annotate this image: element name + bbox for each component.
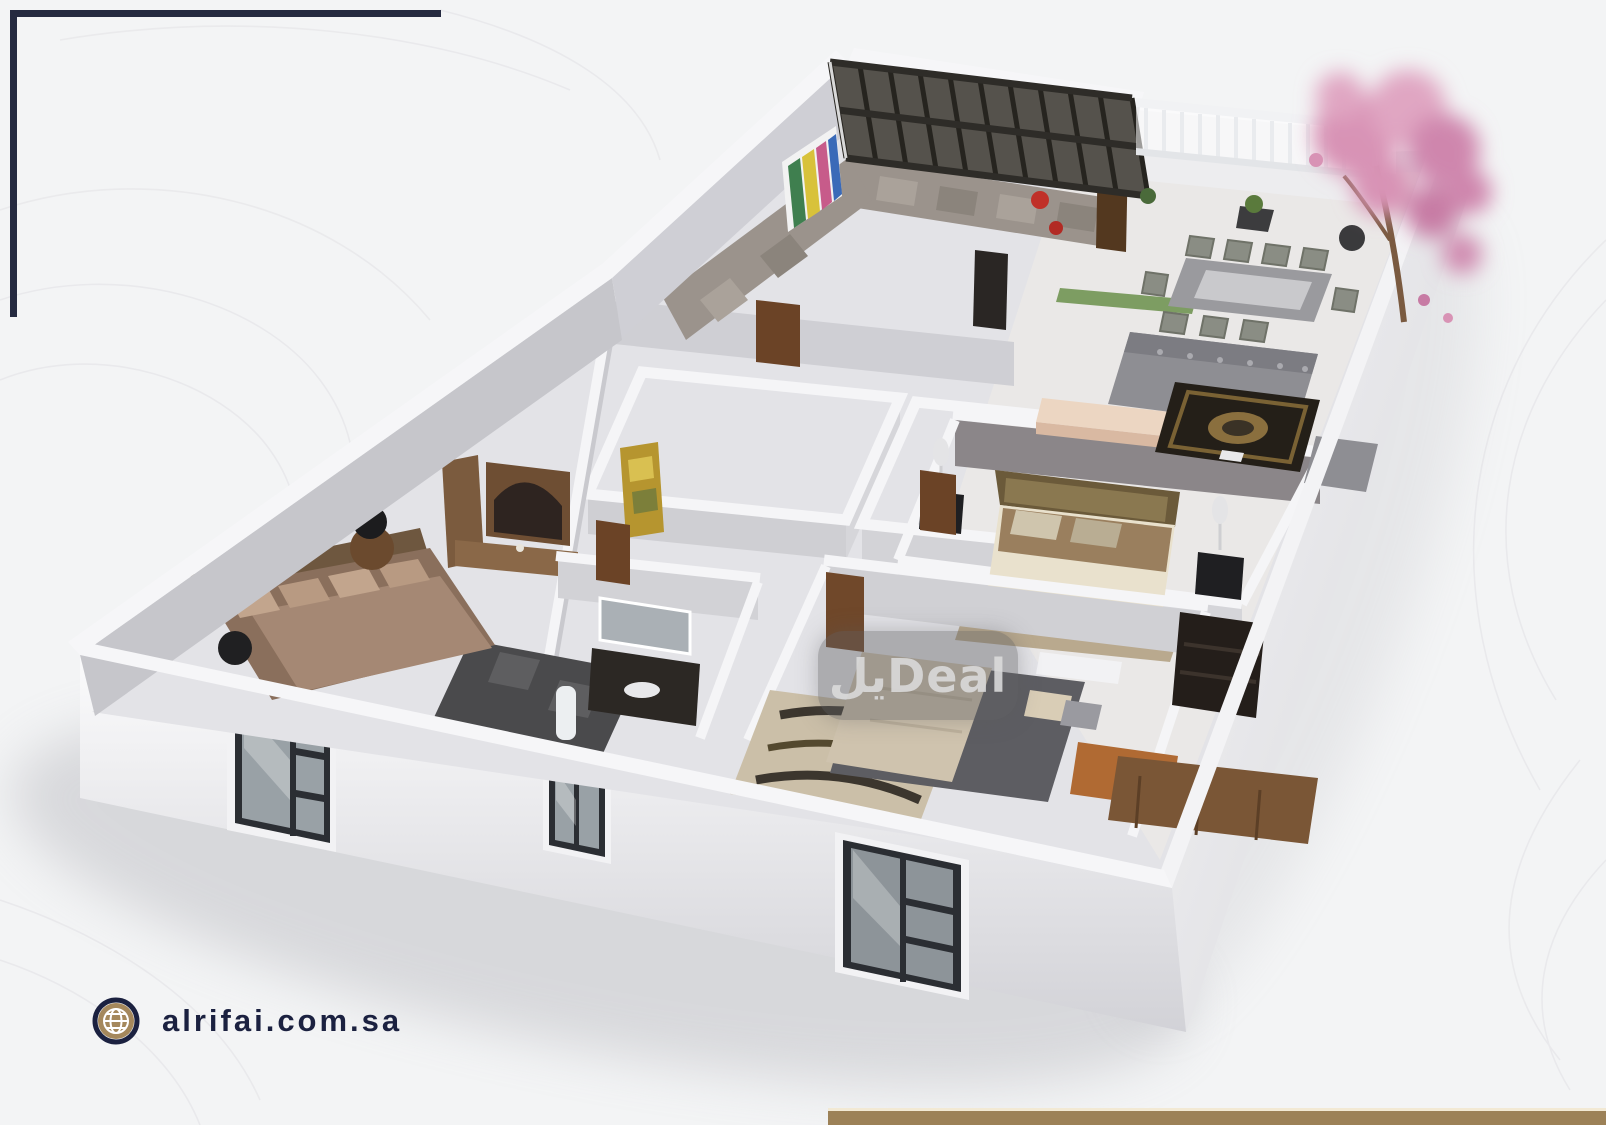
pedestal — [556, 686, 576, 740]
website-text: alrifai.com.sa — [162, 1003, 402, 1039]
planter — [1339, 225, 1365, 251]
render-stage: يلDeal alrifai.com.sa — [0, 0, 1606, 1125]
watermark-badge: يلDeal — [818, 631, 1018, 720]
window-3 — [835, 832, 969, 1000]
tv-console — [973, 250, 1008, 330]
bottom-accent-bar — [828, 1108, 1606, 1125]
globe-icon — [92, 997, 140, 1045]
floorplan-3d-render — [0, 0, 1606, 1125]
footer-brand: alrifai.com.sa — [92, 997, 402, 1045]
watermark-text: يلDeal — [829, 653, 1008, 699]
yellow-shelf-unit — [620, 442, 664, 538]
red-wall-art — [1031, 191, 1049, 209]
